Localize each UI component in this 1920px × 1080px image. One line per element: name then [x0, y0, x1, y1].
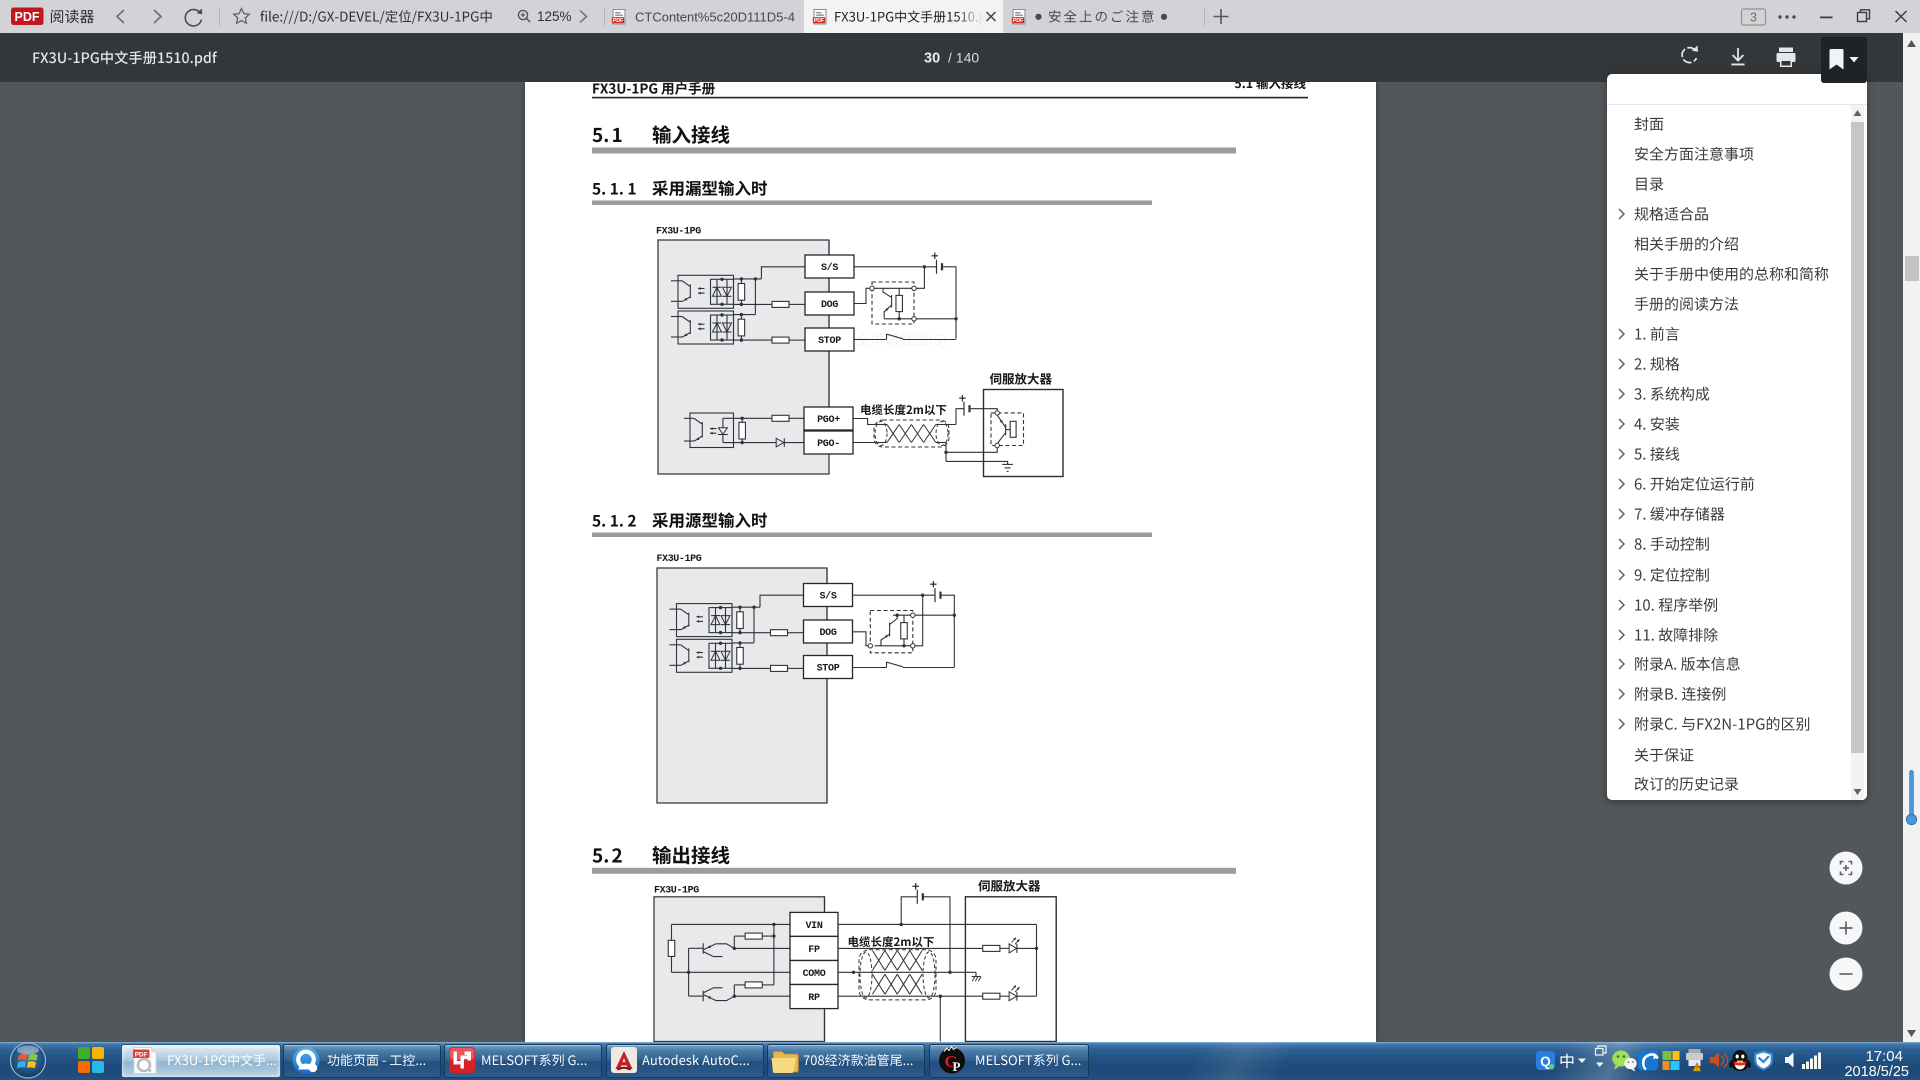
- svg-text:17:04: 17:04: [1865, 1048, 1903, 1065]
- svg-text:!: !: [1696, 1066, 1698, 1072]
- svg-text:P: P: [953, 1059, 961, 1074]
- svg-text:2018/5/25: 2018/5/25: [1844, 1064, 1909, 1080]
- svg-text:PDF: PDF: [135, 1052, 148, 1059]
